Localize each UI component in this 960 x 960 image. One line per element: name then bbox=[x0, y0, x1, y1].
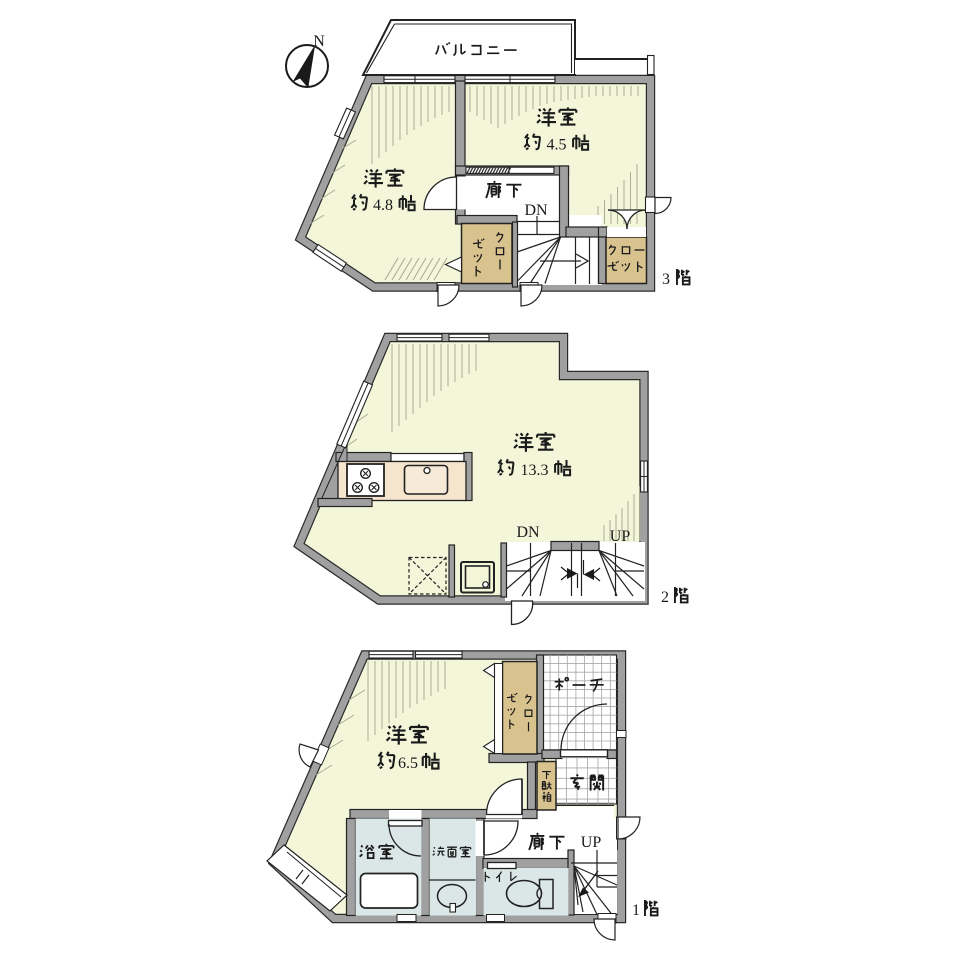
svg-text:2: 2 bbox=[661, 589, 669, 606]
svg-text:4.8: 4.8 bbox=[373, 197, 393, 214]
svg-text:DN: DN bbox=[516, 524, 540, 541]
svg-text:N: N bbox=[313, 33, 325, 50]
svg-text:4.5: 4.5 bbox=[547, 137, 567, 154]
svg-text:6.5: 6.5 bbox=[398, 755, 418, 772]
svg-text:UP: UP bbox=[610, 528, 631, 545]
svg-text:DN: DN bbox=[524, 202, 548, 219]
svg-text:13.3: 13.3 bbox=[521, 462, 549, 479]
svg-text:UP: UP bbox=[581, 834, 602, 851]
svg-text:3: 3 bbox=[662, 271, 670, 288]
svg-text:1: 1 bbox=[632, 902, 640, 919]
